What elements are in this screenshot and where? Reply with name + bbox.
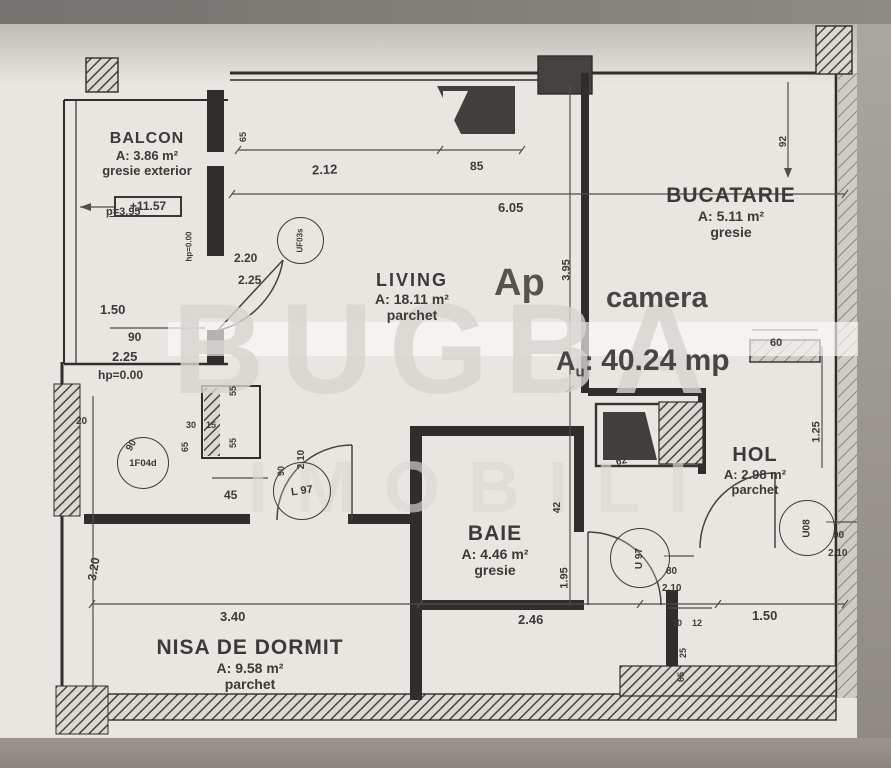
dimension-label: 3.95 bbox=[561, 259, 573, 280]
dimension-label: 2.12 bbox=[312, 162, 338, 178]
room-baie: BAIE A: 4.46 m² gresie bbox=[420, 522, 570, 578]
room-hol: HOL A: 2.98 m² parchet bbox=[690, 444, 820, 497]
room-living: LIVING A: 18.11 m² parchet bbox=[332, 270, 492, 323]
door-tag-label: U08 bbox=[801, 519, 812, 537]
door-tag-u08: U08 bbox=[779, 500, 835, 556]
door-tag-label: UF03s bbox=[296, 228, 305, 252]
room-name: NISA DE DORMIT bbox=[120, 636, 380, 660]
dimension-label: 62 bbox=[615, 455, 628, 468]
photo-edge-right bbox=[857, 24, 891, 738]
room-floor: parchet bbox=[332, 307, 492, 323]
dimension-label: p=3.95 bbox=[106, 206, 141, 218]
room-name: BAIE bbox=[420, 522, 570, 546]
room-name: BUCATARIE bbox=[636, 184, 826, 208]
dimension-label: 85 bbox=[470, 159, 484, 173]
dimension-label: 55 bbox=[228, 438, 238, 448]
dimension-label: 65 bbox=[238, 132, 248, 142]
floor-plan-scan: BUGBA IMOBILI BALCON A: 3.86 m² gresie e… bbox=[0, 0, 891, 768]
dimension-label: 1.95 bbox=[559, 567, 571, 588]
dimension-label: 1.50 bbox=[100, 302, 125, 317]
photo-edge-top bbox=[0, 0, 891, 24]
door-tag-uf03s: UF03s bbox=[277, 217, 324, 264]
dimension-label: 65 bbox=[676, 672, 686, 682]
au-value: 40.24 mp bbox=[601, 344, 729, 377]
room-bucatarie: BUCATARIE A: 5.11 m² gresie bbox=[636, 184, 826, 240]
dimension-label: 2.10 bbox=[296, 450, 307, 469]
au-sub: u bbox=[576, 363, 585, 380]
au-a: A bbox=[556, 346, 576, 376]
dimension-label: 42 bbox=[552, 502, 563, 513]
dimension-label: 80 bbox=[666, 566, 677, 577]
apartment-label-ap: Ap bbox=[494, 262, 545, 305]
dimension-label: 12 bbox=[692, 618, 702, 628]
room-area: A: 2.98 m² bbox=[690, 467, 820, 482]
room-area: A: 3.86 m² bbox=[72, 148, 222, 163]
dimension-label: 20 bbox=[76, 416, 87, 427]
dimension-label: hp=0.00 bbox=[98, 368, 143, 382]
dimension-label: 2.20 bbox=[234, 251, 257, 265]
dimension-label: 45 bbox=[224, 488, 237, 502]
room-name: BALCON bbox=[72, 130, 222, 148]
room-nisa-de-dormit: NISA DE DORMIT A: 9.58 m² parchet bbox=[120, 636, 380, 692]
room-area: A: 5.11 m² bbox=[636, 208, 826, 224]
door-tag-label: L 97 bbox=[290, 484, 313, 499]
dimension-label: 90 bbox=[128, 330, 141, 344]
dimension-label: 30 bbox=[186, 420, 196, 430]
room-name: LIVING bbox=[332, 270, 492, 291]
room-area: A: 4.46 m² bbox=[420, 546, 570, 562]
apartment-label-camera: camera bbox=[606, 282, 708, 315]
door-tag-label: U 97 bbox=[635, 547, 646, 568]
door-tag-label: 1F04d bbox=[129, 458, 156, 469]
watermark-band bbox=[168, 322, 858, 356]
dimension-label: hp=0.00 bbox=[185, 231, 194, 261]
dimension-label: 2.25 bbox=[112, 349, 137, 364]
dimension-label: 60 bbox=[770, 337, 782, 349]
dimension-label: 2.25 bbox=[238, 273, 261, 287]
plan-paper: BUGBA IMOBILI BALCON A: 3.86 m² gresie e… bbox=[0, 24, 857, 738]
room-floor: parchet bbox=[120, 676, 380, 692]
dimension-label: 90 bbox=[276, 466, 286, 476]
dimension-label: 55 bbox=[228, 386, 238, 396]
room-balcon: BALCON A: 3.86 m² gresie exterior bbox=[72, 130, 222, 178]
room-floor: parchet bbox=[690, 482, 820, 497]
dimension-label: 65 bbox=[180, 442, 190, 452]
room-area: A: 18.11 m² bbox=[332, 291, 492, 307]
photo-edge-bottom bbox=[0, 738, 891, 768]
dimension-label: 90 bbox=[833, 530, 844, 541]
apartment-area-total: Au: 40.24 mp bbox=[556, 344, 730, 380]
hatched-wall-blocks bbox=[86, 26, 852, 94]
dimension-label: 92 bbox=[778, 136, 789, 147]
dimension-label: 15 bbox=[206, 420, 216, 430]
dimension-label: 2.46 bbox=[518, 612, 543, 627]
room-floor: gresie exterior bbox=[72, 163, 222, 178]
dimension-label: 2.10 bbox=[828, 548, 847, 559]
dimension-label: 6.05 bbox=[498, 200, 523, 215]
room-floor: gresie bbox=[420, 562, 570, 578]
au-colon: : bbox=[585, 346, 594, 376]
dimension-label: 1.25 bbox=[811, 421, 823, 442]
dimension-label: 3.40 bbox=[220, 609, 245, 624]
dimension-label: 1.50 bbox=[752, 608, 777, 623]
room-name: HOL bbox=[690, 444, 820, 467]
room-area: A: 9.58 m² bbox=[120, 660, 380, 676]
dimension-label: 2.10 bbox=[662, 583, 681, 594]
room-floor: gresie bbox=[636, 224, 826, 240]
dimension-label: 10 bbox=[672, 618, 682, 628]
door-tag-u97: U 97 bbox=[610, 528, 670, 588]
dimension-label: 25 bbox=[678, 648, 688, 658]
